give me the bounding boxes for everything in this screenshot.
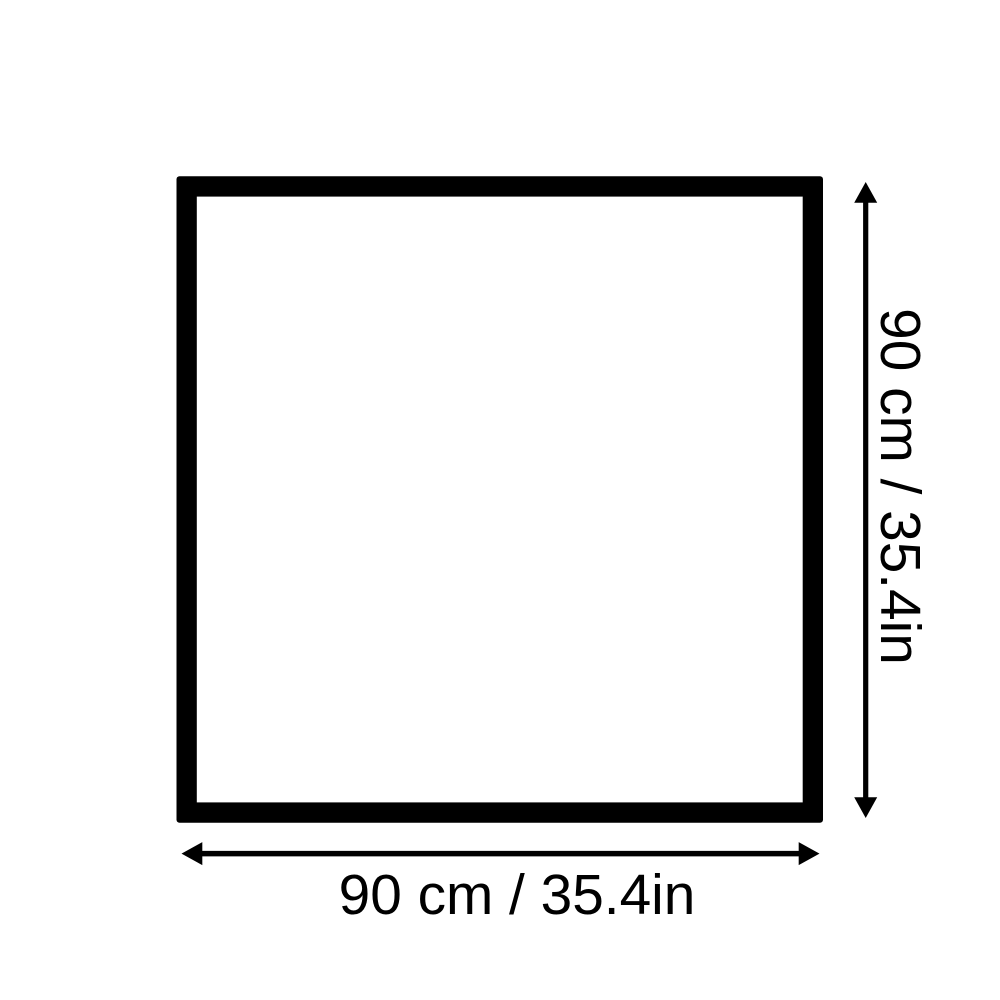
svg-text:90 cm / 35.4in: 90 cm / 35.4in (868, 308, 931, 665)
svg-text:90 cm / 35.4in: 90 cm / 35.4in (339, 864, 696, 927)
